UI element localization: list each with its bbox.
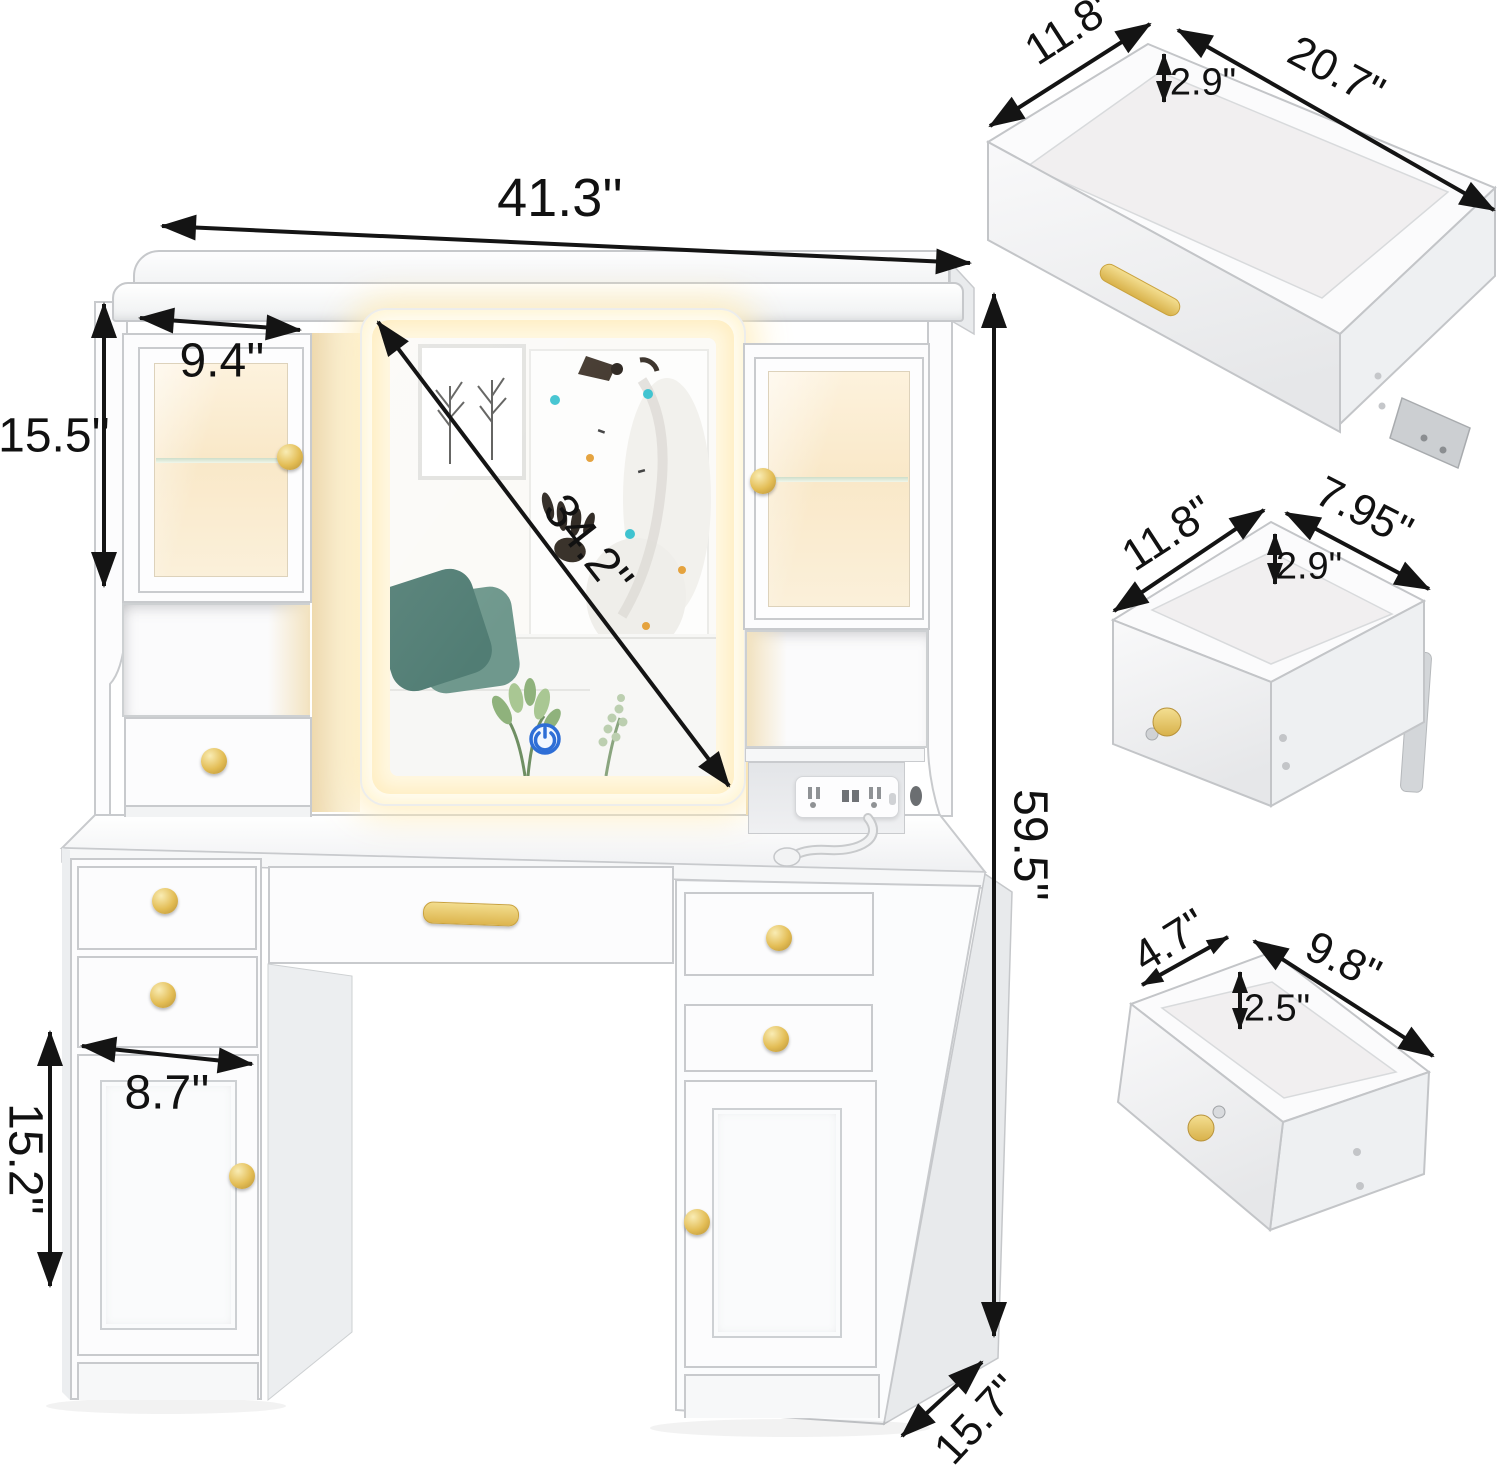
vanity-dimension-diagram: 41.3'' 9.4'' 15.5'' 34.2'' 59.5'' 8.7'' … xyxy=(0,0,1500,1473)
dim-arrow-overall-width xyxy=(162,226,970,263)
label-drawer1-height: 2.9" xyxy=(1170,62,1236,105)
label-overall-height: 59.5'' xyxy=(1003,789,1058,901)
label-upper-cabinet-width: 9.4'' xyxy=(179,334,264,389)
dim-arrow-mirror-diagonal xyxy=(378,322,729,786)
label-overall-width: 41.3'' xyxy=(497,167,623,229)
dimension-arrows xyxy=(0,0,1500,1473)
label-lower-cabinet-height: 15.2'' xyxy=(0,1103,53,1215)
label-drawer3-height: 2.5" xyxy=(1244,988,1310,1031)
label-drawer2-height: 2.9" xyxy=(1276,546,1342,589)
label-upper-cabinet-height: 15.5'' xyxy=(0,409,110,464)
dim-arrow-upper-cabinet-width xyxy=(140,318,300,330)
dim-arrow-lower-cabinet-width xyxy=(82,1046,252,1064)
label-lower-cabinet-width: 8.7'' xyxy=(124,1066,209,1121)
